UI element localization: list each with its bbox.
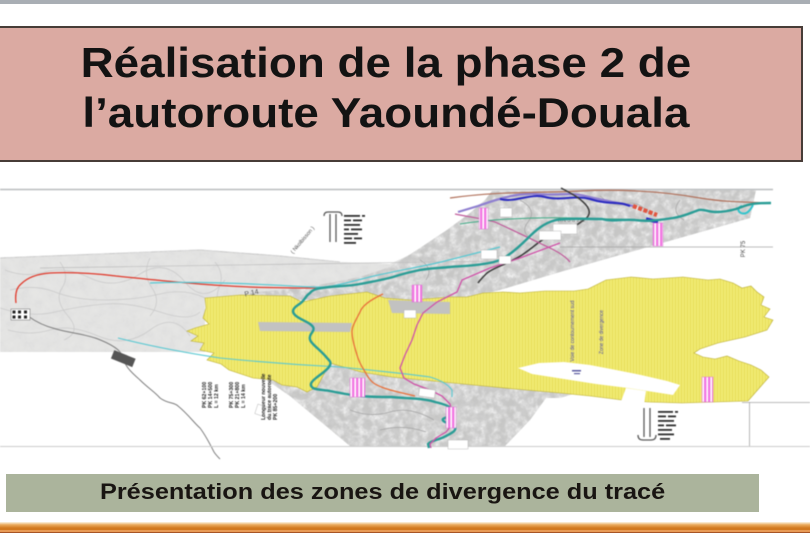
svg-text:Voie de contournement sud: Voie de contournement sud [570,300,576,361]
svg-text:PK 75: PK 75 [741,240,747,257]
svg-text:Zone de divergence: Zone de divergence [599,310,605,354]
svg-text:L = 12 km: L = 12 km [214,384,220,408]
svg-text:L = 14 km: L = 14 km [241,384,247,408]
svg-text:( Nkolbisson ): ( Nkolbisson ) [290,226,316,256]
svg-text:PK 85+200: PK 85+200 [273,394,279,420]
